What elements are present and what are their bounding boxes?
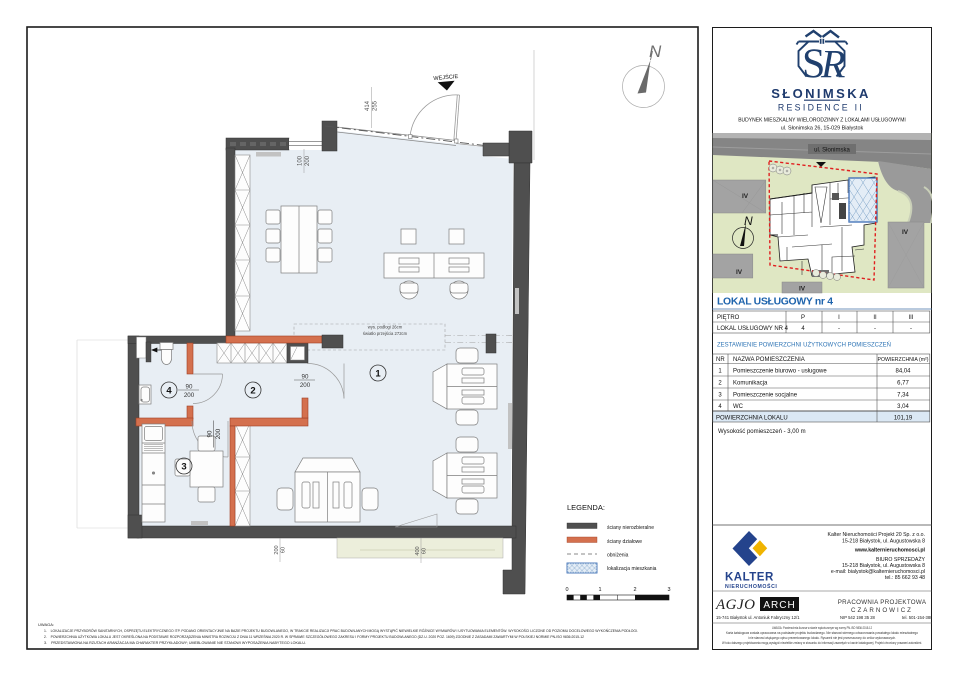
svg-text:BUDYNEK MIESZKALNY WIELORODZIN: BUDYNEK MIESZKALNY WIELORODZINNY Z LOKAL… [738,118,906,124]
svg-text:SŁONIMSKA: SŁONIMSKA [771,86,871,101]
svg-text:6,77: 6,77 [897,381,909,387]
svg-text:III: III [908,315,913,321]
svg-text:N: N [649,42,662,61]
svg-text:NR: NR [716,357,725,363]
svg-text:ZESTAWIENIE POWIERZCHNI UŻYTKO: ZESTAWIENIE POWIERZCHNI UŻYTKOWYCH POMIE… [717,340,891,349]
svg-text:WC: WC [733,404,744,410]
svg-text:www.kalternieruchomosci.pl: www.kalternieruchomosci.pl [854,548,926,554]
svg-text:PRACOWNIA PROJEKTOWA: PRACOWNIA PROJEKTOWA [838,599,927,606]
svg-text:3,04: 3,04 [897,404,909,410]
svg-text:LEGENDA:: LEGENDA: [567,503,605,512]
svg-text:lokalizacja mieszkania: lokalizacja mieszkania [607,566,657,572]
svg-text:100: 100 [298,155,304,166]
svg-text:Komunikacja: Komunikacja [733,381,768,387]
svg-text:400: 400 [415,546,421,555]
svg-text:CZARNOWICZ: CZARNOWICZ [851,607,913,614]
svg-text:P: P [801,315,805,321]
svg-text:2: 2 [633,587,636,593]
svg-text:3. PRZEDSTAWIONA NA RZUTACH: 3. PRZEDSTAWIONA NA RZUTACH ARANŻACJA MA… [44,640,306,645]
svg-text:0: 0 [565,587,568,593]
svg-text:1: 1 [718,369,722,375]
svg-text:4: 4 [166,386,172,397]
svg-text:4: 4 [718,404,722,410]
svg-text:NIERUCHOMOŚCI: NIERUCHOMOŚCI [725,583,777,590]
svg-text:-: - [838,326,840,332]
svg-text:W toku dalszego projektowania: W toku dalszego projektowania mogą wystą… [722,641,922,645]
svg-text:2. POWIERZCHNIA UŻYTKOWA LO: 2. POWIERZCHNIA UŻYTKOWA LOKALU JEST OKR… [44,634,585,639]
svg-text:200: 200 [215,428,222,439]
svg-text:ARCH: ARCH [763,600,795,611]
svg-text:KALTER: KALTER [725,572,774,584]
svg-text:200: 200 [305,155,311,166]
svg-text:200: 200 [274,545,280,554]
svg-text:4: 4 [801,326,805,332]
svg-text:N: N [744,214,753,228]
svg-text:IV: IV [902,229,909,236]
svg-text:tel. 501-154-380: tel. 501-154-380 [902,615,932,620]
svg-text:IV: IV [799,286,806,293]
svg-text:1. LOKALIZACJE PRZYBORÓW SA: 1. LOKALIZACJE PRZYBORÓW SANITARNYCH, OS… [44,628,638,633]
svg-text:wys. podłogi 26cm: wys. podłogi 26cm [368,325,403,330]
svg-text:414: 414 [365,100,371,111]
svg-text:60: 60 [281,547,287,553]
svg-text:UWAGA: Powierzchnia liczona: UWAGA: Powierzchnia liczona w stanie wyk… [772,626,872,630]
svg-text:IV: IV [736,269,743,276]
svg-text:15-741 Białystok ul. Antoniu: 15-741 Białystok ul. Antoniuk Fabryczny … [716,615,800,620]
svg-text:90: 90 [302,374,309,381]
svg-text:LOKAL USŁUGOWY NR 4: LOKAL USŁUGOWY NR 4 [717,326,789,332]
svg-text:ul. Słonimska 26, 15-029 Biały: ul. Słonimska 26, 15-029 Białystok [781,126,864,132]
svg-text:UWAGA:: UWAGA: [38,622,54,627]
svg-text:tel.: 85 662 93 48: tel.: 85 662 93 48 [885,575,925,581]
svg-text:ściany działowe: ściany działowe [607,539,642,545]
svg-text:R: R [820,42,845,87]
svg-text:3: 3 [181,462,186,473]
svg-text:84,04: 84,04 [895,369,911,375]
svg-text:obniżenia: obniżenia [607,553,629,559]
svg-text:101,19: 101,19 [894,416,913,422]
svg-text:BIURO SPRZEDAŻY: BIURO SPRZEDAŻY [876,556,926,563]
svg-text:200: 200 [184,392,195,399]
svg-text:IV: IV [742,193,749,200]
svg-text:AGJO: AGJO [715,597,756,613]
svg-text:3: 3 [718,393,722,399]
svg-text:NIP 542 198 35 28: NIP 542 198 35 28 [840,615,876,620]
svg-text:NAZWA POMIESZCZENIA: NAZWA POMIESZCZENIA [733,357,805,363]
svg-text:II: II [873,315,877,321]
svg-text:2: 2 [718,381,722,387]
svg-text:LOKAL USŁUGOWY nr 4: LOKAL USŁUGOWY nr 4 [717,297,833,308]
svg-text:15-218 Białystok, ul. Augustow: 15-218 Białystok, ul. Augustowska 8 [842,539,925,545]
svg-text:1: 1 [598,587,601,593]
svg-text:200: 200 [300,382,311,389]
svg-text:PIĘTRO: PIĘTRO [717,315,740,321]
svg-text:Karta katalogowa została oprac: Karta katalogowa została opracowana na p… [726,631,918,635]
svg-text:POWIERZCHNIA LOKALU: POWIERZCHNIA LOKALU [716,416,788,422]
svg-text:Wysokość pomieszczeń - 3,00 m: Wysokość pomieszczeń - 3,00 m [718,429,806,435]
svg-text:-: - [910,326,912,332]
svg-text:255: 255 [373,100,379,111]
svg-text:ul. Słonimska: ul. Słonimska [814,148,850,154]
svg-text:i nie stanowi wiążącego opisu: i nie stanowi wiążącego opisu prezentowa… [748,636,896,640]
svg-text:Kalter Nieruchomości Projekt 2: Kalter Nieruchomości Projekt 20 Sp. z o.… [828,532,925,538]
svg-text:ściany nierozbieralne: ściany nierozbieralne [607,525,654,531]
svg-text:światło przejścia 272cm: światło przejścia 272cm [363,331,408,336]
svg-text:Pomieszczenie biurowo - usługo: Pomieszczenie biurowo - usługowe [733,369,827,375]
svg-text:60: 60 [422,548,428,554]
svg-text:2: 2 [250,386,255,397]
svg-text:3: 3 [667,587,670,593]
svg-text:-: - [874,326,876,332]
svg-text:RESIDENCE II: RESIDENCE II [778,103,864,113]
svg-text:I: I [838,315,840,321]
svg-text:7,34: 7,34 [897,393,909,399]
svg-text:90: 90 [207,430,214,437]
svg-text:90: 90 [186,384,193,391]
svg-text:Pomieszczenie socjalne: Pomieszczenie socjalne [733,393,798,399]
svg-text:1: 1 [375,369,381,380]
svg-text:POWIERZCHNIA (m²): POWIERZCHNIA (m²) [877,357,928,363]
